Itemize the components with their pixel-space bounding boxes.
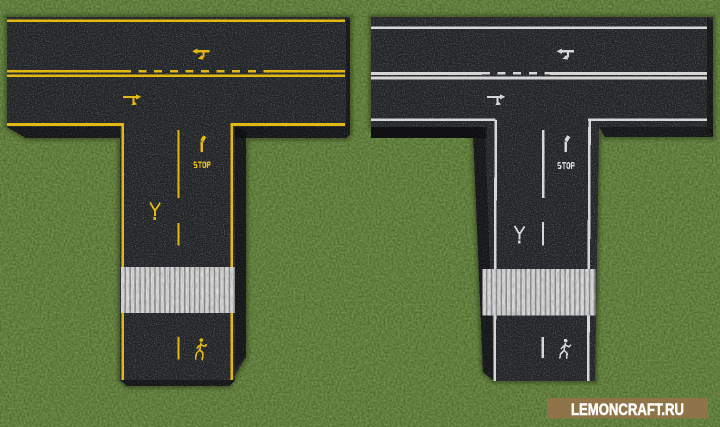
- svg-text:LEMONCRAFT.RU: LEMONCRAFT.RU: [571, 401, 684, 419]
